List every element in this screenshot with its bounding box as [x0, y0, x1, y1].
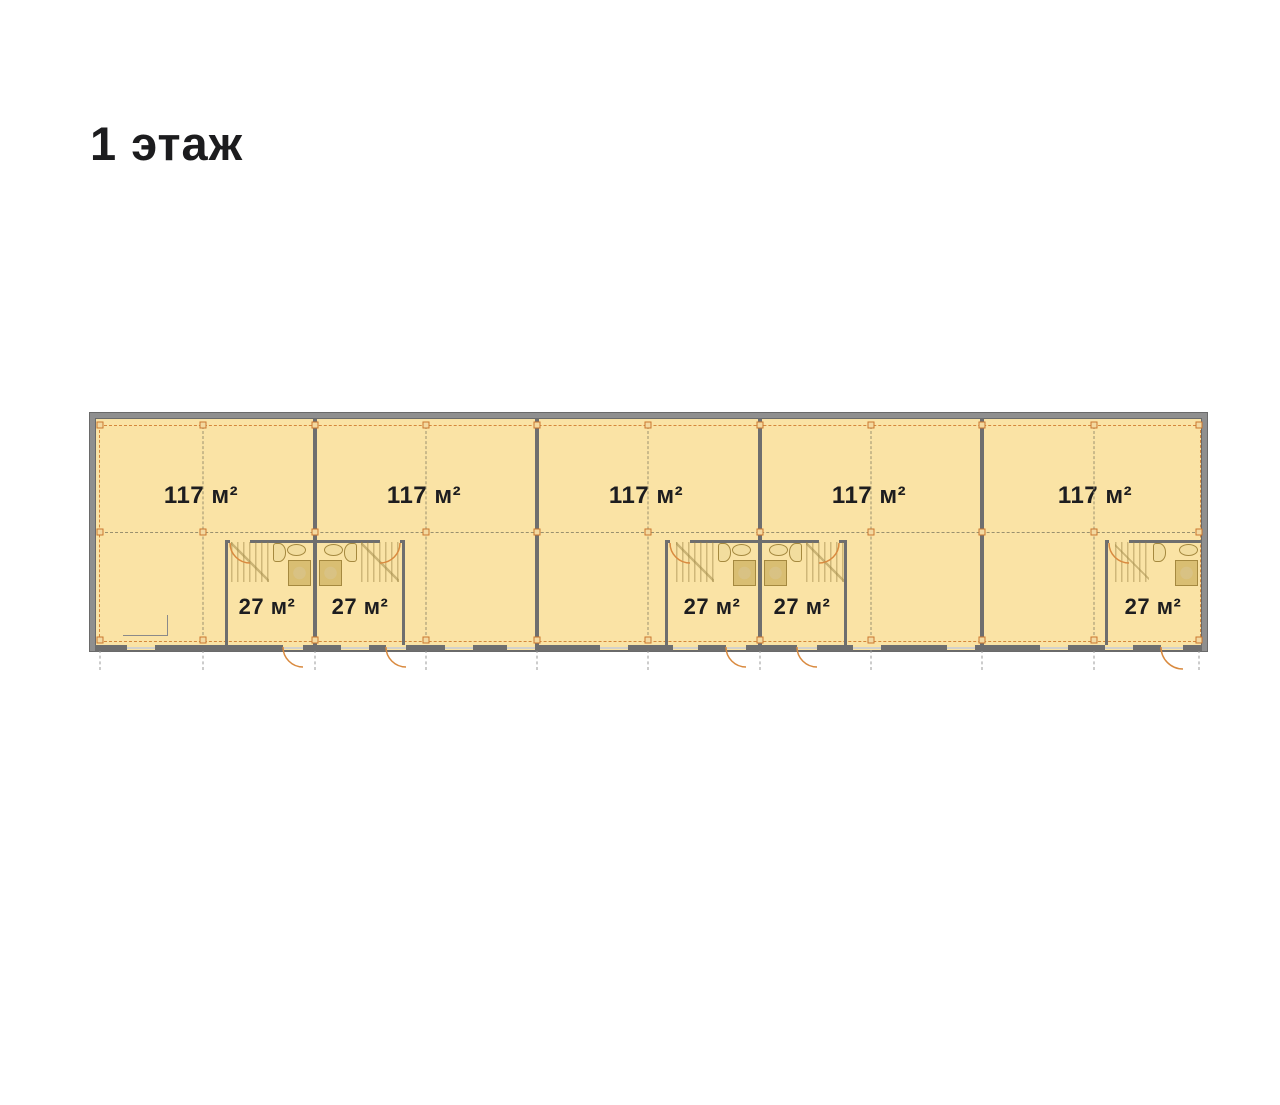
unit-2-area-label: 117 м²: [387, 482, 461, 510]
sink-icon: [732, 544, 751, 556]
grid-marker: [1091, 637, 1098, 644]
grid-marker: [534, 637, 541, 644]
grid-marker: [1196, 637, 1203, 644]
shower-icon: [764, 560, 787, 586]
grid-tick: [760, 650, 761, 670]
door-swing: [380, 542, 402, 564]
door-swing: [670, 542, 692, 564]
grid-marker: [868, 529, 875, 536]
grid-tick: [537, 650, 538, 670]
room-3-area-label: 27 м²: [684, 594, 741, 620]
grid-marker: [200, 529, 207, 536]
grid-marker: [1196, 422, 1203, 429]
front-wall-segment: [473, 645, 507, 651]
unit-1-area-label: 117 м²: [164, 482, 238, 510]
front-wall-segment: [1183, 645, 1202, 651]
sink-icon: [324, 544, 343, 556]
grid-marker: [423, 637, 430, 644]
room-2-area-label: 27 м²: [332, 594, 389, 620]
grid-marker: [868, 637, 875, 644]
unit-4-area-label: 117 м²: [832, 482, 906, 510]
grid-marker: [200, 422, 207, 429]
shower-icon: [733, 560, 756, 586]
grid-tick: [1199, 650, 1200, 670]
page-title: 1 этаж: [90, 116, 243, 171]
grid-tick: [203, 650, 204, 670]
front-wall-segment: [975, 645, 1040, 651]
grid-marker: [534, 422, 541, 429]
grid-tick: [315, 650, 316, 670]
room-4-area-label: 27 м²: [774, 594, 831, 620]
grid-marker: [645, 422, 652, 429]
sink-icon: [769, 544, 788, 556]
front-wall-segment: [303, 645, 341, 651]
door-swing: [230, 542, 252, 564]
front-wall-segment: [881, 645, 947, 651]
grid-marker: [1091, 529, 1098, 536]
grid-marker: [979, 637, 986, 644]
front-wall-segment: [535, 645, 600, 651]
entrance-step-mark: [123, 615, 168, 636]
front-wall-segment: [746, 645, 797, 651]
front-wall-segment: [221, 645, 283, 651]
front-wall-segment: [1068, 645, 1105, 651]
grid-marker: [312, 637, 319, 644]
grid-marker: [757, 529, 764, 536]
shower-icon: [288, 560, 311, 586]
grid-marker: [645, 529, 652, 536]
front-wall-segment: [628, 645, 673, 651]
grid-marker: [757, 637, 764, 644]
unit-3-area-label: 117 м²: [609, 482, 683, 510]
front-wall-segment: [817, 645, 853, 651]
grid-marker: [97, 529, 104, 536]
grid-marker: [534, 529, 541, 536]
grid-marker: [1196, 529, 1203, 536]
sink-icon: [287, 544, 306, 556]
page: { "title": "1 этаж", "plan": { "units": …: [0, 0, 1280, 1105]
front-wall-segment: [698, 645, 726, 651]
grid-marker: [1091, 422, 1098, 429]
room-wall: [665, 540, 668, 645]
grid-marker: [868, 422, 875, 429]
toilet-icon: [718, 543, 731, 562]
door-swing: [386, 646, 408, 668]
door-swing: [283, 646, 305, 668]
front-wall-segment: [369, 645, 386, 651]
toilet-icon: [344, 543, 357, 562]
unit-5-area-label: 117 м²: [1058, 482, 1132, 510]
sink-icon: [1179, 544, 1198, 556]
shower-icon: [1175, 560, 1198, 586]
grid-tick: [1094, 650, 1095, 670]
grid-marker: [979, 529, 986, 536]
front-wall-segment: [95, 645, 127, 651]
grid-marker: [423, 529, 430, 536]
grid-marker: [312, 422, 319, 429]
front-wall-segment: [1133, 645, 1161, 651]
door-swing: [819, 542, 841, 564]
room-1-area-label: 27 м²: [239, 594, 296, 620]
front-wall-segment: [406, 645, 445, 651]
room-5-area-label: 27 м²: [1125, 594, 1182, 620]
door-swing: [726, 646, 748, 668]
door-swing: [1109, 542, 1131, 564]
grid-tick: [648, 650, 649, 670]
grid-marker: [97, 637, 104, 644]
grid-marker: [645, 637, 652, 644]
grid-tick: [982, 650, 983, 670]
floor-plan: 117 м² 117 м² 117 м² 117 м² 117 м² 27 м²…: [90, 413, 1207, 651]
toilet-icon: [789, 543, 802, 562]
door-swing: [797, 646, 819, 668]
front-wall-segment: [155, 645, 223, 651]
grid-tick: [871, 650, 872, 670]
toilet-icon: [1153, 543, 1166, 562]
grid-marker: [757, 422, 764, 429]
door-swing: [1161, 646, 1185, 670]
grid-marker: [979, 422, 986, 429]
grid-tick: [426, 650, 427, 670]
grid-marker: [200, 637, 207, 644]
grid-marker: [312, 529, 319, 536]
toilet-icon: [273, 543, 286, 562]
shower-icon: [319, 560, 342, 586]
grid-marker: [97, 422, 104, 429]
grid-marker: [423, 422, 430, 429]
grid-tick: [100, 650, 101, 670]
